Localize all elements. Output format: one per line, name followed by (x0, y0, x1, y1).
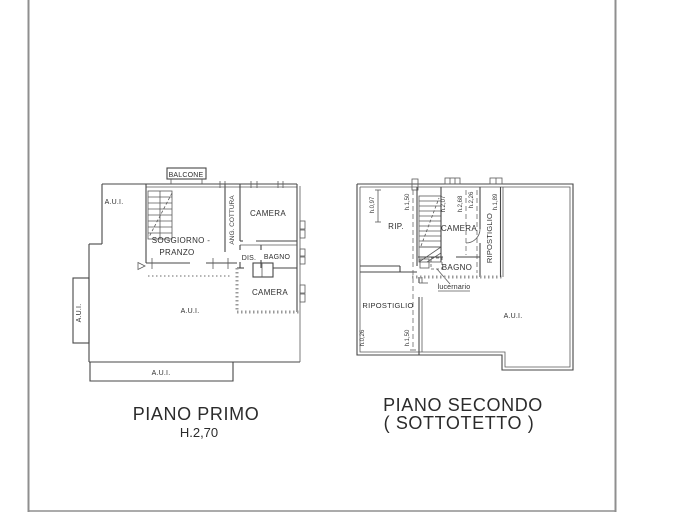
caption-piano-primo-height: H.2,70 (180, 425, 218, 440)
caption-piano-secondo: PIANO SECONDO (383, 395, 543, 415)
height-label-h268: h.2,68 (458, 195, 464, 212)
room-label-camera-f2: CAMERA (441, 224, 477, 233)
room-label-bagno-f2: BAGNO (442, 263, 472, 272)
plan-piano-secondo: RIP. CAMERA RIPOSTIGLIO BAGNO lucernario… (357, 178, 573, 370)
floor-plan-drawing: BALCONE A.U.I. SOGGIORNO - PRANZO ANG. C… (0, 0, 687, 515)
room-label-soggiorno-2: PRANZO (159, 248, 194, 257)
height-label-h226: h.2,26 (469, 191, 475, 208)
door-marker (138, 263, 145, 270)
room-label-balcone: BALCONE (169, 172, 204, 179)
plan-piano-primo: BALCONE A.U.I. SOGGIORNO - PRANZO ANG. C… (73, 168, 305, 381)
captions: PIANO PRIMO H.2,70 PIANO SECONDO ( SOTTO… (133, 395, 543, 440)
room-label-camera-bottom: CAMERA (252, 288, 288, 297)
height-label-h189: h.1,89 (493, 193, 499, 210)
page-frame (29, 0, 616, 512)
caption-sottotetto: ( SOTTOTETTO ) (384, 413, 535, 433)
height-label-h026: h.0,26 (360, 329, 366, 346)
room-label-aui-main: A.U.I. (181, 308, 200, 315)
staircase-floor1 (148, 191, 172, 239)
staircase-floor2 (419, 196, 441, 262)
room-label-ripostiglio-left: RIPOSTIGLIO (362, 301, 413, 310)
caption-piano-primo: PIANO PRIMO (133, 404, 260, 424)
height-label-h207: h.2,07 (441, 195, 447, 212)
room-label-aui-left: A.U.I. (76, 304, 83, 323)
room-label-ang-cottura: ANG. COTTURA (229, 195, 236, 245)
height-label-h097: h.0,97 (370, 196, 376, 213)
room-label-camera-top: CAMERA (250, 209, 286, 218)
scanned-plan-page: BALCONE A.U.I. SOGGIORNO - PRANZO ANG. C… (0, 0, 687, 515)
room-label-rip: RIP. (388, 222, 404, 231)
room-label-bagno-f1: BAGNO (264, 254, 291, 261)
room-label-aui-f2: A.U.I. (504, 313, 523, 320)
label-lucernario: lucernario (438, 284, 471, 291)
height-label-h150-top: h.1,50 (405, 193, 411, 210)
room-label-soggiorno-1: SOGGIORNO - (152, 236, 210, 245)
room-label-aui-top: A.U.I. (105, 199, 124, 206)
room-label-aui-bottom: A.U.I. (152, 370, 171, 377)
height-label-h150-bottom: h.1,50 (405, 329, 411, 346)
bagno-fixture-block (253, 263, 273, 277)
room-label-dis: DIS. (242, 255, 256, 262)
room-label-ripostiglio-right: RIPOSTIGLIO (485, 213, 494, 263)
